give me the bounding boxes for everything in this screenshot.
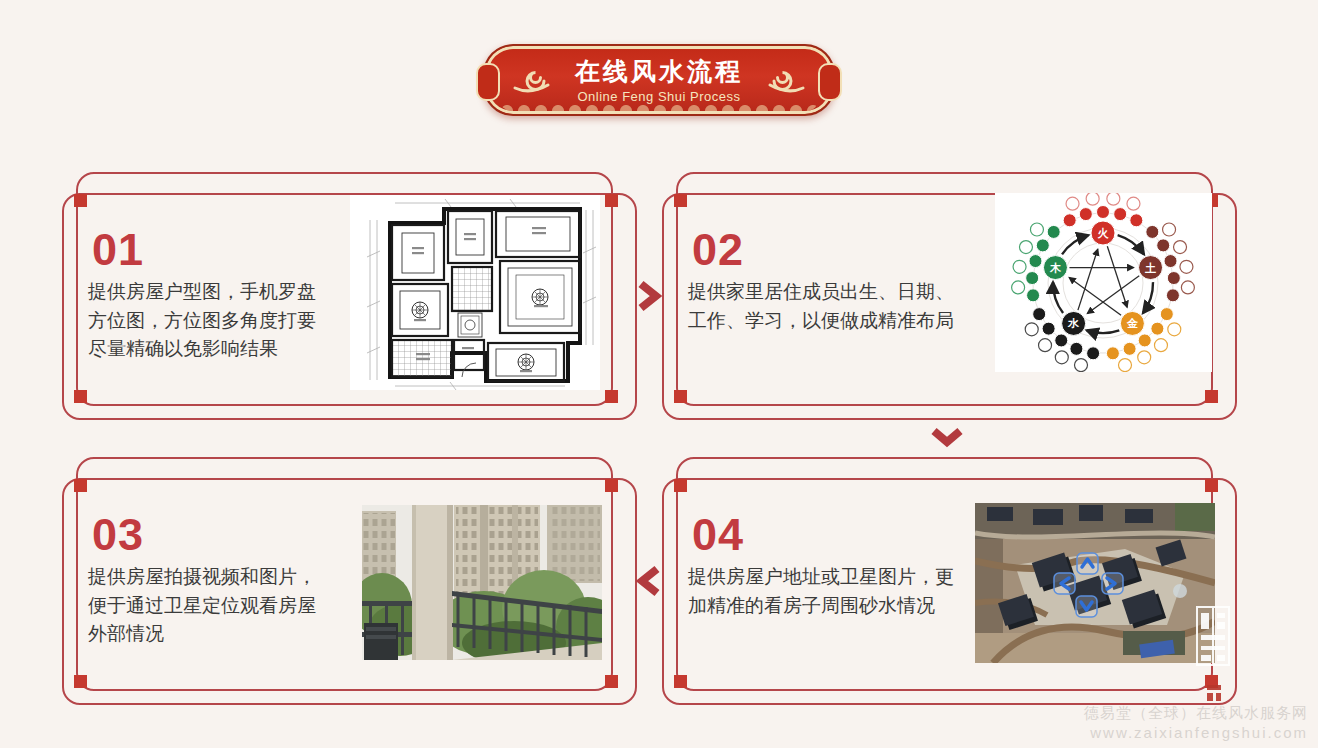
cloud-swirl-icon xyxy=(763,60,807,100)
step-number: 03 xyxy=(92,509,144,561)
corner-square xyxy=(1205,390,1218,403)
corner-square xyxy=(74,479,87,492)
step-card-3: 03 提供房屋拍摄视频和图片， 便于通过卫星定位观看房屋 外部情况 xyxy=(62,457,637,705)
corner-square xyxy=(1205,479,1218,492)
corner-square xyxy=(674,194,687,207)
title-banner: 在线风水流程 Online Feng Shui Process xyxy=(483,44,835,116)
svg-text:木: 木 xyxy=(1049,262,1062,274)
corner-square xyxy=(674,675,687,688)
svg-text:土: 土 xyxy=(1145,262,1156,274)
step-number: 04 xyxy=(692,509,744,561)
corner-square xyxy=(74,675,87,688)
step-card-2: 02 提供家里居住成员出生、日期、 工作、学习，以便做成精准布局 火土金水木 xyxy=(662,172,1237,420)
arrow-right-icon xyxy=(636,280,662,312)
arrow-left-icon xyxy=(636,565,662,597)
corner-square xyxy=(605,390,618,403)
site-watermark: 德易堂（全球）在线风水服务网 www.zaixianfengshui.com xyxy=(1084,704,1308,741)
floor-plan-image xyxy=(350,195,600,390)
step-description: 提供房屋户地址或卫星图片，更 加精准的看房子周围砂水情况 xyxy=(688,563,988,620)
step-card-4: 04 提供房屋户地址或卫星图片，更 加精准的看房子周围砂水情况 xyxy=(662,457,1237,705)
step-description: 提供房屋户型图，手机罗盘 方位图，方位图多角度打要 尽量精确以免影响结果 xyxy=(88,278,388,364)
corner-square xyxy=(74,390,87,403)
corner-square xyxy=(605,479,618,492)
site-url: www.zaixianfengshui.com xyxy=(1084,724,1308,741)
corner-square xyxy=(605,194,618,207)
satellite-photo xyxy=(975,503,1215,663)
site-name: 德易堂（全球）在线风水服务网 xyxy=(1084,704,1308,723)
arrow-down-icon xyxy=(930,426,964,448)
step-card-1: 01 提供房屋户型图，手机罗盘 方位图，方位图多角度打要 尽量精确以免影响结果 xyxy=(62,172,637,420)
balcony-photo xyxy=(362,505,602,660)
step-number: 02 xyxy=(692,224,744,276)
corner-square xyxy=(74,194,87,207)
step-description: 提供房屋拍摄视频和图片， 便于通过卫星定位观看房屋 外部情况 xyxy=(88,563,388,649)
svg-text:水: 水 xyxy=(1067,317,1080,329)
corner-square xyxy=(674,390,687,403)
corner-square xyxy=(674,479,687,492)
svg-text:火: 火 xyxy=(1098,227,1110,239)
corner-square xyxy=(605,675,618,688)
svg-text:金: 金 xyxy=(1126,317,1139,329)
cloud-swirl-icon xyxy=(511,60,555,100)
step-description: 提供家里居住成员出生、日期、 工作、学习，以便做成精准布局 xyxy=(688,278,988,335)
watermark-seal-logo xyxy=(1195,605,1233,709)
five-elements-diagram: 火土金水木 xyxy=(995,193,1212,372)
step-number: 01 xyxy=(92,224,144,276)
